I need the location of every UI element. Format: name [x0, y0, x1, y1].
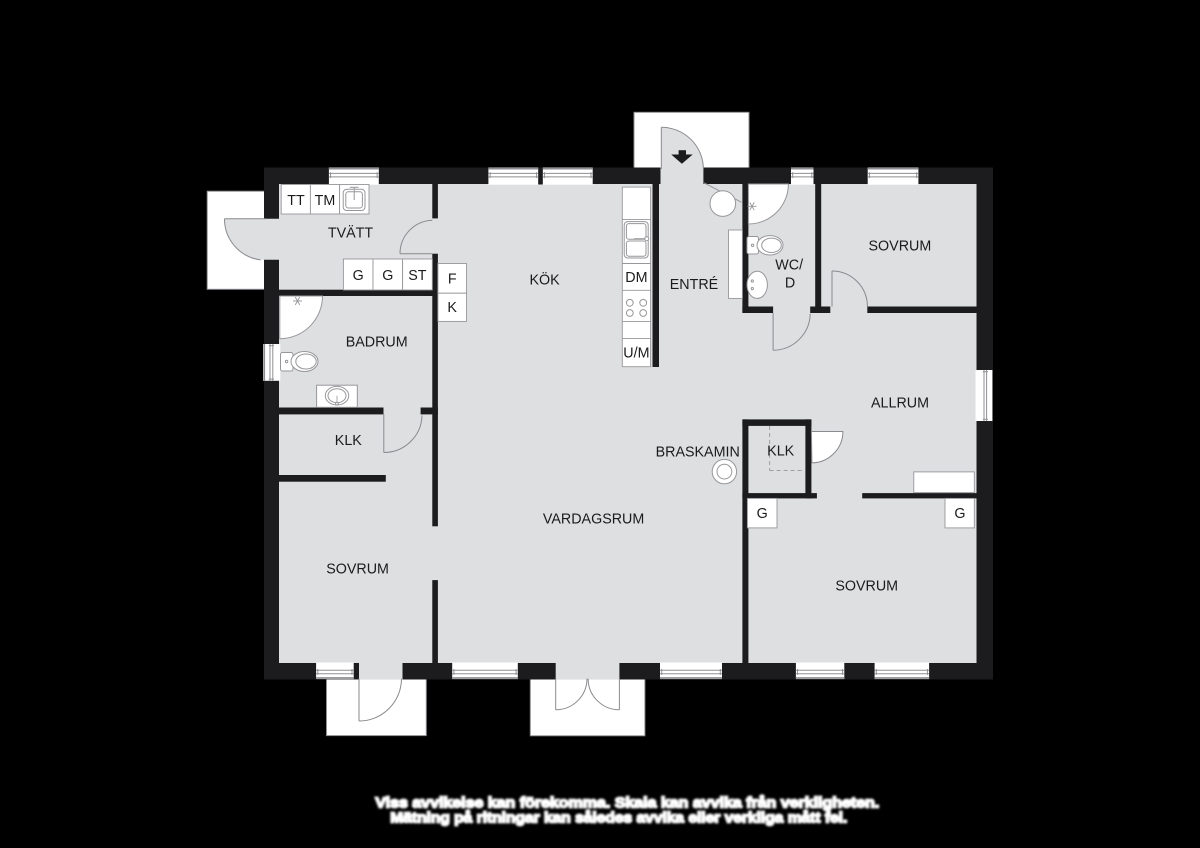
svg-text:K: K: [447, 300, 457, 316]
svg-text:ENTRÉ: ENTRÉ: [670, 276, 718, 293]
svg-text:ALLRUM: ALLRUM: [871, 396, 929, 412]
svg-text:VARDAGSRUM: VARDAGSRUM: [543, 512, 644, 528]
svg-text:KÖK: KÖK: [529, 271, 560, 289]
svg-text:U/M: U/M: [623, 346, 649, 362]
svg-text:SOVRUM: SOVRUM: [835, 579, 898, 595]
svg-text:ST: ST: [408, 268, 427, 284]
svg-text:G: G: [757, 506, 768, 522]
svg-text:BADRUM: BADRUM: [346, 334, 408, 350]
svg-text:G: G: [382, 268, 393, 284]
svg-text:DM: DM: [625, 270, 647, 286]
svg-text:BRASKAMIN: BRASKAMIN: [656, 444, 740, 460]
svg-text:KLK: KLK: [767, 443, 794, 459]
svg-text:Viss avvikelse kan förekomma.: Viss avvikelse kan förekomma. Skala kan …: [375, 796, 879, 812]
svg-text:TM: TM: [315, 193, 336, 209]
svg-text:SOVRUM: SOVRUM: [326, 561, 389, 577]
svg-text:KLK: KLK: [335, 433, 362, 449]
svg-text:WC/: WC/: [775, 257, 803, 273]
svg-text:G: G: [353, 268, 364, 284]
svg-text:TT: TT: [287, 193, 305, 209]
svg-text:TVÄTT: TVÄTT: [328, 225, 374, 242]
svg-text:Mätning på ritningar kan såled: Mätning på ritningar kan således avvika …: [390, 811, 847, 827]
svg-text:D: D: [785, 275, 795, 291]
svg-text:F: F: [448, 272, 457, 288]
svg-text:G: G: [954, 506, 965, 522]
svg-text:SOVRUM: SOVRUM: [869, 239, 932, 255]
